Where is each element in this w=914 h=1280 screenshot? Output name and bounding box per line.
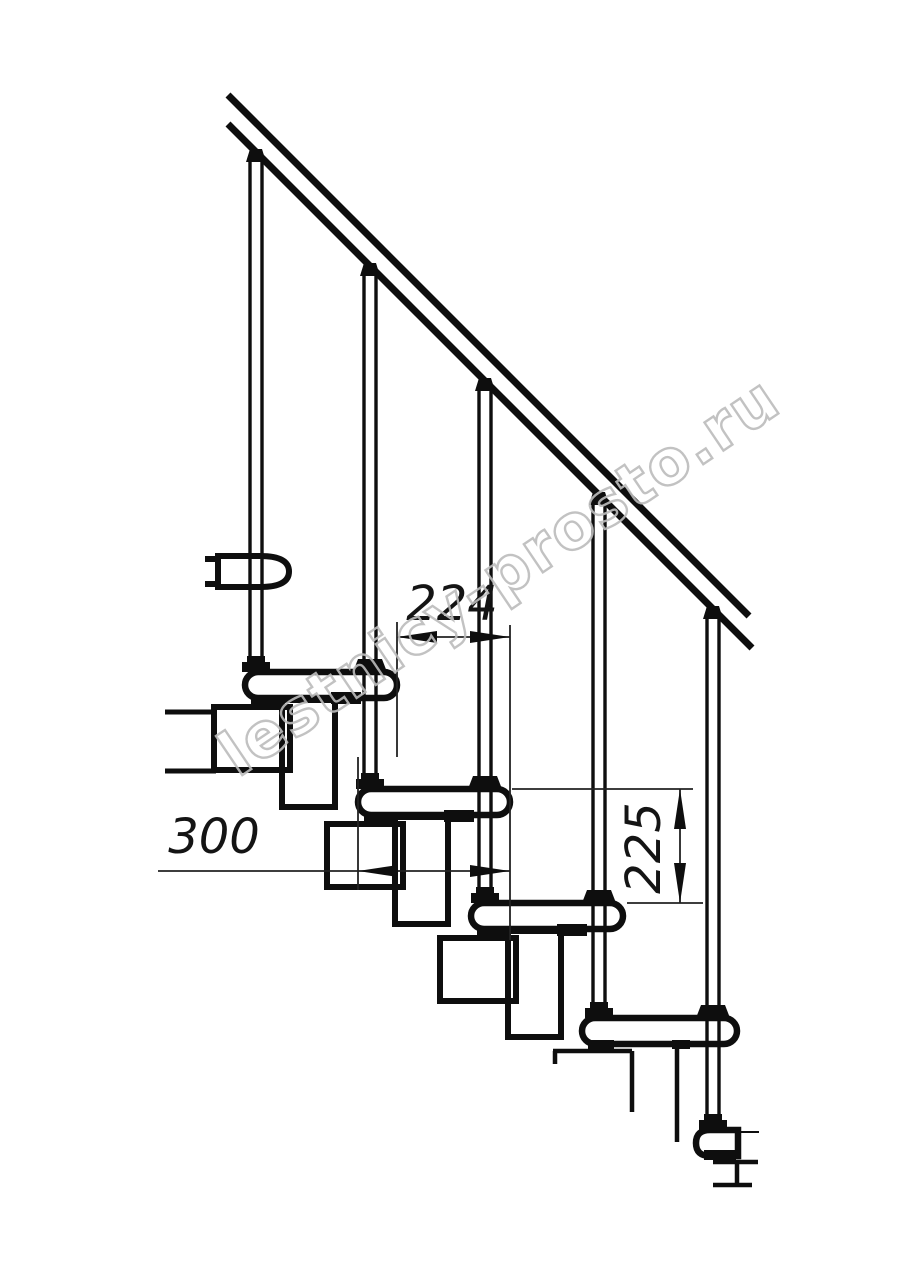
staircase-drawing: 224 300 225 lestnicy-prosto.ru xyxy=(0,0,914,1280)
tread-2 xyxy=(358,789,510,815)
passthrough-collar-tread-4 xyxy=(696,1005,730,1018)
tread-5-pad xyxy=(704,1150,736,1160)
module-cut-lines-5 xyxy=(713,1162,758,1185)
baluster-1-base-collar xyxy=(242,656,270,672)
baluster-4 xyxy=(589,492,609,1020)
tread-4-pad-right xyxy=(672,1040,690,1049)
passthrough-collar-tread-3 xyxy=(582,890,616,903)
handrail-end-bracket xyxy=(218,556,289,587)
tread-3-pad-left xyxy=(477,926,505,936)
tread-4-pad-left xyxy=(588,1040,614,1049)
module-cut-lines-4 xyxy=(553,1045,677,1142)
baluster-5-base-collar xyxy=(699,1114,727,1130)
dimension-225-arrow-up xyxy=(674,789,686,829)
baluster-4-base-collar xyxy=(585,1002,613,1018)
baluster-3-base-collar xyxy=(471,887,499,903)
baluster-2 xyxy=(360,263,380,791)
technical-drawing-page: 224 300 225 lestnicy-prosto.ru xyxy=(0,0,914,1280)
module-square-3 xyxy=(440,938,516,1001)
baluster-1 xyxy=(246,149,266,674)
handrail-top-line xyxy=(228,95,749,616)
dimension-225-label: 225 xyxy=(616,802,672,894)
tread-2-pad-left xyxy=(364,812,392,822)
dimension-225: 225 xyxy=(512,789,703,903)
dimension-225-arrow-down xyxy=(674,863,686,903)
dimension-300-label: 300 xyxy=(168,809,260,865)
tread-2-pad-right xyxy=(444,810,474,822)
passthrough-collar-tread-2 xyxy=(468,776,502,789)
baluster-5 xyxy=(703,606,723,1132)
tread-3-pad-right xyxy=(557,924,587,936)
dimension-300-arrow-left xyxy=(358,865,398,877)
module-square-2 xyxy=(327,824,403,887)
tread-3 xyxy=(471,903,623,929)
baluster-2-base-collar xyxy=(356,773,384,789)
